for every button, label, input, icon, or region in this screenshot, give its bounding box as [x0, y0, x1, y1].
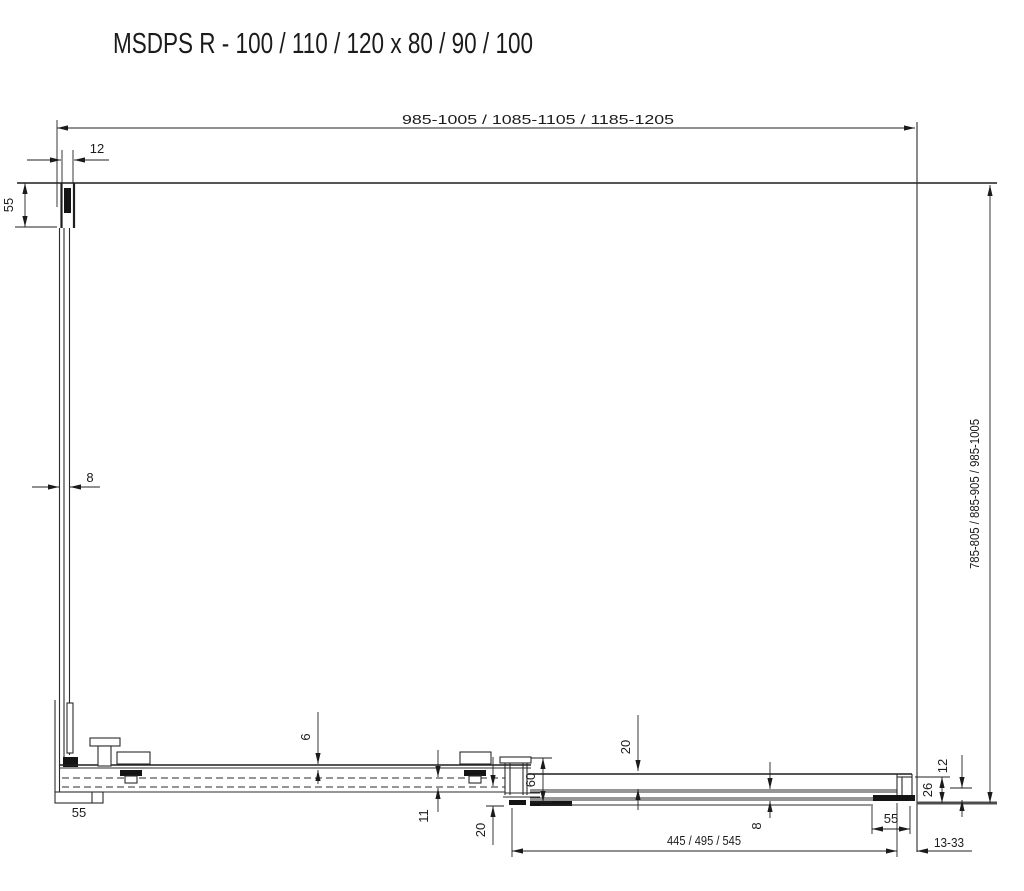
- dim-right-depth-label: 785-805 / 885-905 / 985-1005: [967, 419, 982, 569]
- dim-20-right-label: 20: [618, 740, 633, 754]
- drawing-canvas: MSDPS R - 100 / 110 / 120 x 80 / 90 / 10…: [0, 0, 1024, 891]
- dim-door-width-label: 445 / 495 / 545: [667, 833, 741, 848]
- dim-8-door-label: 8: [749, 822, 764, 829]
- roller-carriages: [90, 738, 491, 783]
- dim-12-right-label: 12: [935, 759, 950, 773]
- sliding-door-panel: [528, 774, 915, 805]
- dimension-labels: 985-1005 / 1085-1105 / 1185-1205 785-805…: [1, 112, 982, 850]
- dim-26-label: 26: [920, 783, 935, 797]
- drawing-title: MSDPS R - 100 / 110 / 120 x 80 / 90 / 10…: [113, 28, 533, 60]
- shower-enclosure-technical-drawing: MSDPS R - 100 / 110 / 120 x 80 / 90 / 10…: [0, 0, 1024, 891]
- dim-11-label: 11: [416, 809, 431, 823]
- dim-20-left-label: 20: [473, 823, 488, 837]
- dimension-lines: [15, 128, 990, 857]
- dim-top-width-label: 985-1005 / 1085-1105 / 1185-1205: [402, 112, 674, 127]
- dim-wall-gap-label: 13-33: [934, 835, 964, 850]
- side-panel-glass: [60, 150, 75, 792]
- dim-55-bottom-left-label: 55: [72, 805, 86, 820]
- enclosure-outline: [17, 120, 997, 852]
- dim-55-left-label: 55: [1, 198, 16, 212]
- dim-12-left-label: 12: [90, 141, 104, 156]
- dim-8-left-label: 8: [86, 470, 93, 485]
- dim-6-label: 6: [298, 733, 313, 740]
- dim-60-label: 60: [523, 773, 538, 787]
- dim-55-bottom-right-label: 55: [884, 811, 898, 826]
